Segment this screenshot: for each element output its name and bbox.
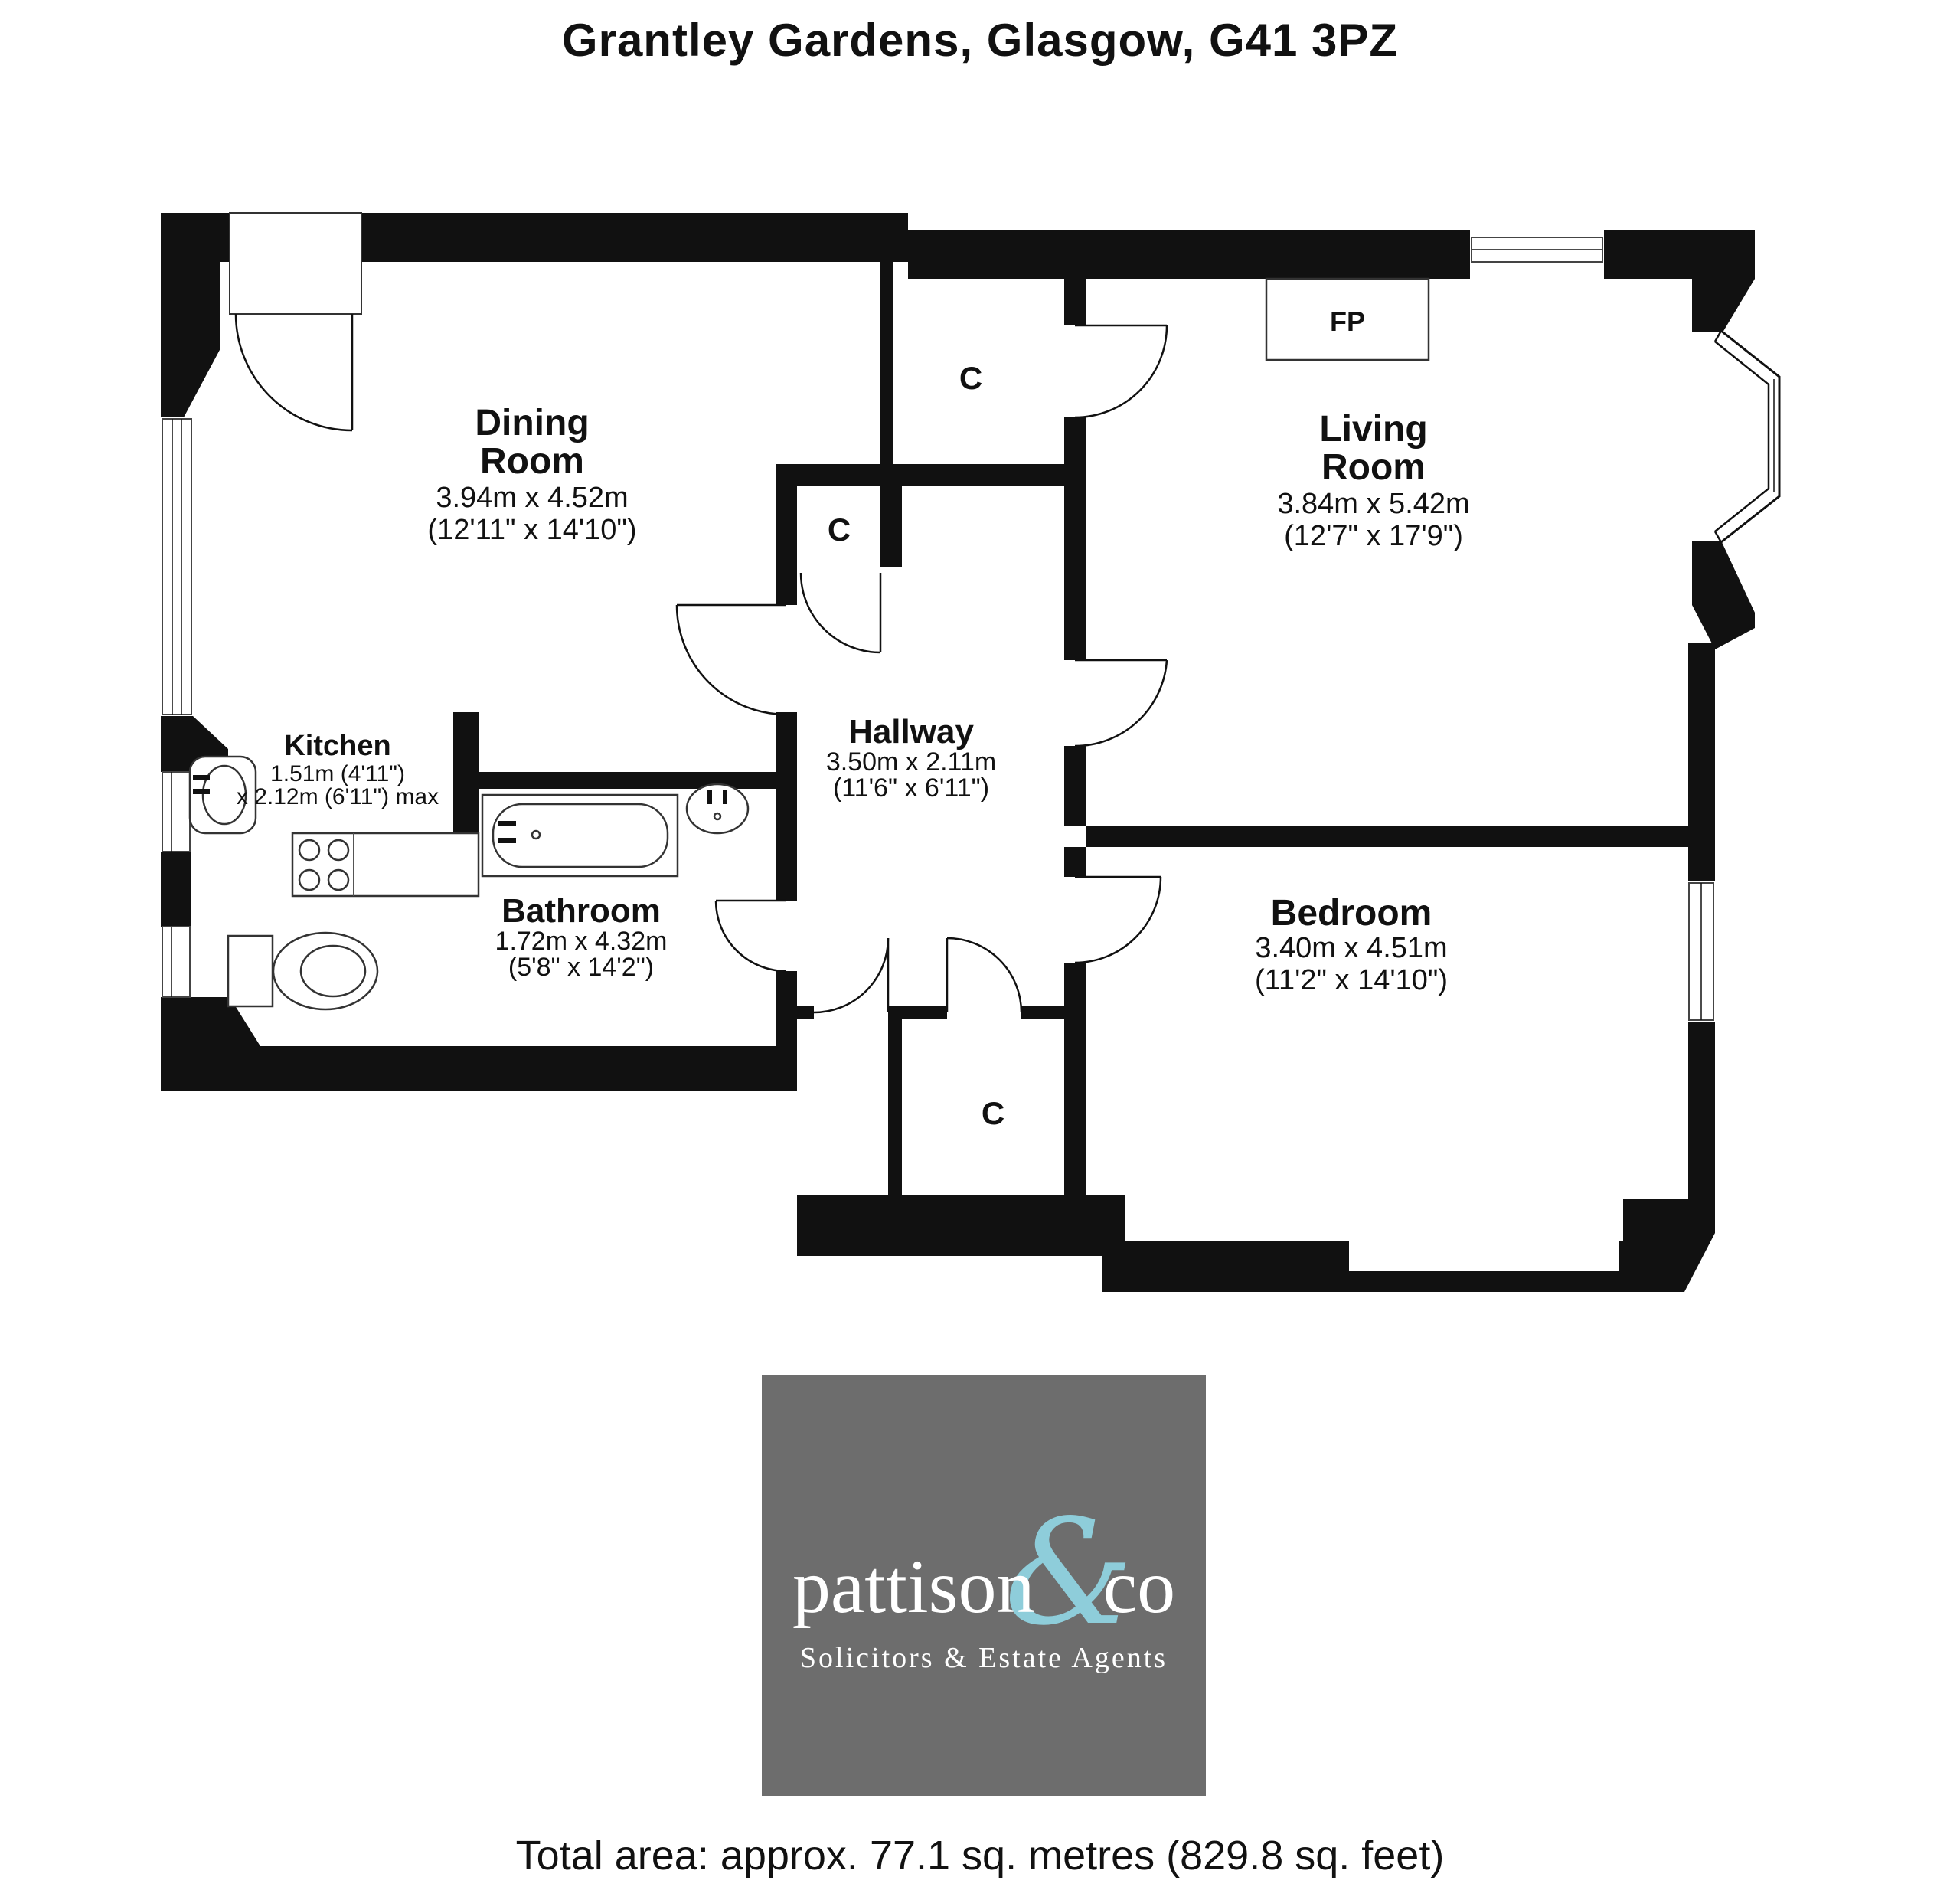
wall-corner-bottom-right bbox=[1623, 1199, 1715, 1292]
kitchen-counter bbox=[292, 833, 479, 896]
wall-bay-bottom bbox=[1692, 541, 1755, 649]
living-room-metric: 3.84m x 5.42m bbox=[1277, 488, 1469, 520]
kitchen-label: Kitchen bbox=[284, 730, 390, 762]
window-toilet bbox=[162, 927, 190, 997]
bathroom-label: Bathroom bbox=[501, 892, 661, 930]
bathtub-tap bbox=[498, 838, 516, 843]
entry-door-arc bbox=[236, 314, 352, 430]
bathroom-sink bbox=[687, 784, 748, 833]
window-dining bbox=[162, 419, 191, 715]
kitchen-metric: 1.51m (4'11") bbox=[270, 761, 405, 786]
dining-room-metric: 3.94m x 4.52m bbox=[436, 482, 628, 514]
bay-window-cap bbox=[1715, 331, 1721, 342]
stove-burner bbox=[299, 870, 319, 890]
hall-lobby-door-arc bbox=[814, 938, 888, 1012]
stove-burner bbox=[328, 840, 348, 860]
bathtub-tap bbox=[498, 821, 516, 826]
bathroom-sink-tap bbox=[707, 790, 712, 804]
agency-brand: pattison & co bbox=[792, 1519, 1175, 1621]
living-room-imperial: (12'7" x 17'9") bbox=[1284, 520, 1463, 552]
agency-logo: pattison & co Solicitors & Estate Agents bbox=[762, 1375, 1206, 1796]
wall-right-bedroom bbox=[1688, 1022, 1715, 1199]
bathroom-sink-drain bbox=[714, 813, 720, 819]
bay-window-inner bbox=[1715, 342, 1769, 531]
wall-bottom-bathroom bbox=[230, 1046, 797, 1091]
closet1-door-arc bbox=[1075, 325, 1167, 417]
wall-closet3-left bbox=[888, 1019, 902, 1195]
hallway-imperial: (11'6" x 6'11") bbox=[833, 773, 989, 803]
wall-bottom-closet bbox=[797, 1195, 1118, 1256]
floorplan-page: Grantley Gardens, Glasgow, G41 3PZ bbox=[0, 0, 1960, 1900]
wall-hall-bottom-a bbox=[797, 1006, 814, 1019]
wall-right-living bbox=[1688, 643, 1715, 881]
hallway-label: Hallway bbox=[848, 713, 974, 751]
bathroom-metric: 1.72m x 4.32m bbox=[495, 927, 668, 956]
wall-left-lower bbox=[161, 852, 191, 927]
wall-bay-top bbox=[1692, 279, 1755, 332]
brand-suffix: co bbox=[1103, 1552, 1175, 1621]
bedroom-bottom-notch bbox=[1349, 1241, 1619, 1271]
wall-hall-left-lower bbox=[776, 971, 797, 1046]
bathtub-drain bbox=[532, 831, 540, 839]
wall-hall-bottom-c bbox=[1021, 1006, 1064, 1019]
living-door-arc bbox=[1075, 660, 1167, 746]
dining-hall-door-arc bbox=[677, 605, 786, 715]
bathroom-door-arc bbox=[716, 901, 786, 971]
wall-corner-top-left bbox=[161, 213, 220, 417]
wall-closet-row-divider bbox=[776, 464, 1086, 486]
stove-burner bbox=[299, 840, 319, 860]
fireplace-marker: FP bbox=[1330, 306, 1365, 337]
kitchen-metric2: x 2.12m (6'11") max bbox=[237, 784, 439, 809]
bay-window-outer bbox=[1721, 331, 1779, 542]
wall-bedroom-left-a bbox=[1064, 847, 1086, 877]
bay-window-cap bbox=[1715, 531, 1721, 542]
hallway-metric: 3.50m x 2.11m bbox=[826, 747, 996, 777]
closet3-door-arc bbox=[947, 938, 1021, 1012]
toilet-cistern bbox=[228, 936, 273, 1006]
bathtub-inner bbox=[493, 804, 668, 867]
bathroom-imperial: (5'8" x 14'2") bbox=[508, 953, 654, 982]
closet-marker: C bbox=[828, 512, 851, 548]
wall-closet2-left bbox=[776, 486, 797, 605]
entry-recess bbox=[230, 213, 361, 314]
bedroom-imperial: (11'2" x 14'10") bbox=[1255, 964, 1448, 996]
bedroom-door-arc bbox=[1075, 877, 1161, 963]
window-kitchen bbox=[162, 772, 190, 852]
wall-living-bedroom-divider bbox=[1086, 826, 1688, 847]
dining-room-label: Dining bbox=[475, 403, 589, 443]
stove-burner bbox=[328, 870, 348, 890]
wall-hall-living-b bbox=[1064, 746, 1086, 826]
closet-marker: C bbox=[959, 360, 982, 396]
wall-hall-bottom-b bbox=[888, 1006, 947, 1019]
dining-room-imperial: (12'11" x 14'10") bbox=[427, 514, 636, 546]
windows bbox=[162, 230, 1779, 1022]
closet2-door-arc bbox=[801, 573, 880, 652]
wall-closet1-right-b bbox=[1064, 417, 1086, 464]
bedroom-label: Bedroom bbox=[1271, 893, 1432, 934]
living-room-label: Room bbox=[1321, 447, 1426, 488]
fixtures bbox=[190, 279, 1429, 1009]
wall-hall-living-a bbox=[1064, 486, 1086, 660]
wall-bedroom-left-b bbox=[1064, 963, 1086, 1195]
closet-marker: C bbox=[982, 1095, 1004, 1131]
brand-main: pattison bbox=[792, 1552, 1035, 1621]
bathroom-sink-tap bbox=[723, 790, 727, 804]
wall-closet1-right-a bbox=[1064, 279, 1086, 325]
dining-room-label: Room bbox=[480, 441, 584, 482]
wall-hall-left-upper bbox=[776, 712, 797, 901]
bedroom-metric: 3.40m x 4.51m bbox=[1255, 932, 1447, 964]
total-area-text: Total area: approx. 77.1 sq. metres (829… bbox=[0, 1832, 1960, 1879]
living-room-label: Living bbox=[1319, 409, 1427, 450]
kitchen-sink-tap bbox=[193, 775, 210, 780]
wall-top-right bbox=[908, 230, 1755, 279]
room-labels: Dining Room 3.94m x 4.52m (12'11" x 14'1… bbox=[237, 306, 1470, 1131]
wall-closet1-left bbox=[880, 262, 893, 464]
wall-closet2-right bbox=[880, 486, 902, 567]
kitchen-sink-tap bbox=[193, 789, 210, 794]
toilet-bowl-inner bbox=[301, 946, 365, 996]
